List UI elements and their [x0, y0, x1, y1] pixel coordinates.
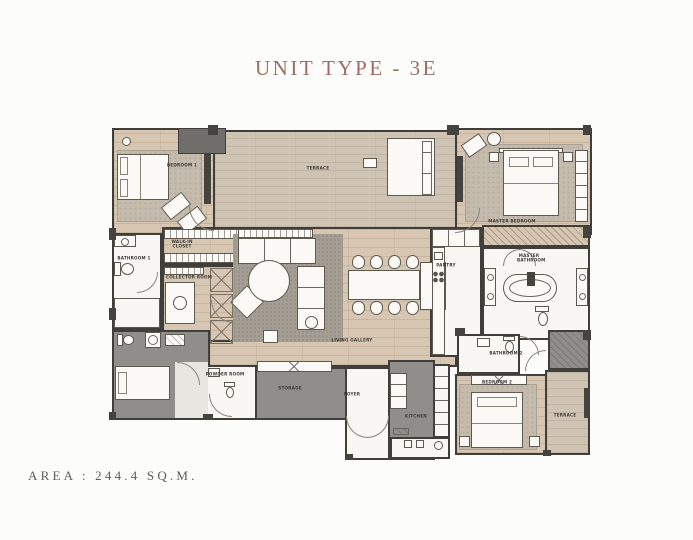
column — [109, 308, 116, 320]
bath-tap — [527, 272, 535, 286]
sink — [477, 338, 490, 347]
console — [238, 229, 313, 238]
column — [455, 328, 465, 336]
pillow — [120, 157, 128, 175]
bed — [503, 150, 559, 216]
basin — [579, 293, 586, 300]
basin — [579, 274, 586, 281]
toilet-tank — [114, 262, 121, 276]
sink — [114, 235, 136, 247]
sofa-cushions — [422, 141, 432, 195]
column — [109, 228, 116, 240]
blanket-fold — [472, 423, 522, 424]
basin — [121, 238, 129, 246]
ottoman — [263, 330, 278, 343]
room-storage — [255, 367, 355, 420]
label-bathroom-2: BATHROOM 2 — [489, 351, 522, 356]
sink — [434, 252, 443, 260]
column — [447, 125, 459, 135]
column — [583, 226, 591, 238]
column — [543, 450, 551, 456]
label-collector-room: COLLECTOR ROOM — [166, 275, 212, 280]
sofa — [238, 238, 316, 264]
floor-plan: BEDROOM 1 TERRACE MASTER BEDROOM WALK-IN… — [105, 122, 593, 467]
sofa — [387, 138, 435, 196]
wardrobe — [575, 150, 588, 222]
bed — [117, 154, 169, 200]
kitchen-sink — [434, 441, 443, 450]
label-pantry: PANTRY — [436, 263, 455, 268]
nightstand — [529, 436, 540, 447]
threshold — [393, 428, 409, 435]
label-powder-room: POWDER ROOM — [206, 372, 245, 377]
toilet-bowl — [121, 263, 134, 275]
pillow — [477, 397, 517, 407]
washer-drum — [148, 335, 158, 345]
coffee-table — [248, 260, 290, 302]
appliance-stack — [390, 373, 407, 409]
label-bathroom-1: BATHROOM 1 — [117, 256, 150, 261]
label-bedroom-2: BEDROOM 2 — [482, 380, 512, 385]
floor-plan-page: UNIT TYPE - 3E — [0, 0, 693, 540]
planter — [210, 268, 233, 292]
dining-chair — [388, 301, 401, 315]
basin — [487, 274, 494, 281]
dining-chair — [370, 301, 383, 315]
column — [345, 454, 353, 460]
toilet-bowl — [123, 335, 134, 345]
label-terrace-top: TERRACE — [307, 166, 330, 171]
bed — [471, 392, 523, 448]
vanity — [576, 268, 588, 306]
label-bedroom-1: BEDROOM 1 — [167, 163, 197, 168]
column — [583, 330, 591, 340]
page-title: UNIT TYPE - 3E — [0, 56, 693, 81]
lamp — [122, 137, 131, 146]
basin — [487, 293, 494, 300]
dining-chair — [406, 301, 419, 315]
label-storage: STORAGE — [278, 386, 302, 391]
toilet-bowl — [538, 312, 548, 326]
pillow — [118, 372, 127, 394]
column — [583, 125, 591, 135]
washer — [145, 332, 161, 348]
shower — [114, 298, 160, 328]
bed — [115, 366, 170, 400]
side-table — [363, 158, 377, 168]
dining-table — [348, 270, 420, 300]
label-living-gallery: LIVING GALLERY — [332, 338, 373, 343]
tv-console — [204, 154, 211, 204]
planter — [210, 320, 233, 344]
dining-chair — [352, 255, 365, 269]
label-master-bathroom: MASTER BATHROOM — [517, 253, 541, 263]
dining-chair — [406, 255, 419, 269]
column — [203, 414, 213, 420]
stove — [432, 270, 445, 284]
desk-chair — [173, 296, 187, 310]
label-foyer: FOYER — [344, 392, 360, 397]
pillow — [509, 157, 529, 167]
label-walkin-closet: WALK-IN CLOSET — [170, 239, 194, 249]
nightstand — [489, 152, 499, 162]
hob — [404, 440, 412, 448]
blanket-fold — [504, 183, 558, 184]
label-master-bedroom: MASTER BEDROOM — [488, 219, 535, 224]
ac-ledge — [178, 128, 226, 154]
floor-lamp — [305, 316, 318, 329]
console-detail — [287, 362, 301, 371]
area-text: AREA : 244.4 SQ.M. — [28, 468, 198, 484]
dining-chair — [370, 255, 383, 269]
label-kitchen: KITCHEN — [405, 414, 427, 419]
hob — [416, 440, 424, 448]
tv-console — [457, 156, 463, 202]
dining-chair — [352, 301, 365, 315]
column — [109, 412, 116, 420]
nightstand — [459, 436, 470, 447]
dining-chair — [388, 255, 401, 269]
ac-unit — [584, 388, 590, 418]
nightstand — [563, 152, 573, 162]
label-terrace-side: TERRACE — [554, 413, 577, 418]
pillow — [120, 179, 128, 197]
shelf — [165, 334, 185, 346]
vanity — [484, 268, 496, 306]
room-foyer — [345, 367, 390, 460]
pillow — [533, 157, 553, 167]
round-table — [487, 132, 501, 146]
kitchen-tall-cabinet — [433, 364, 450, 438]
column — [208, 125, 218, 135]
master-closet-strip — [482, 225, 590, 247]
blanket-fold — [140, 155, 141, 199]
